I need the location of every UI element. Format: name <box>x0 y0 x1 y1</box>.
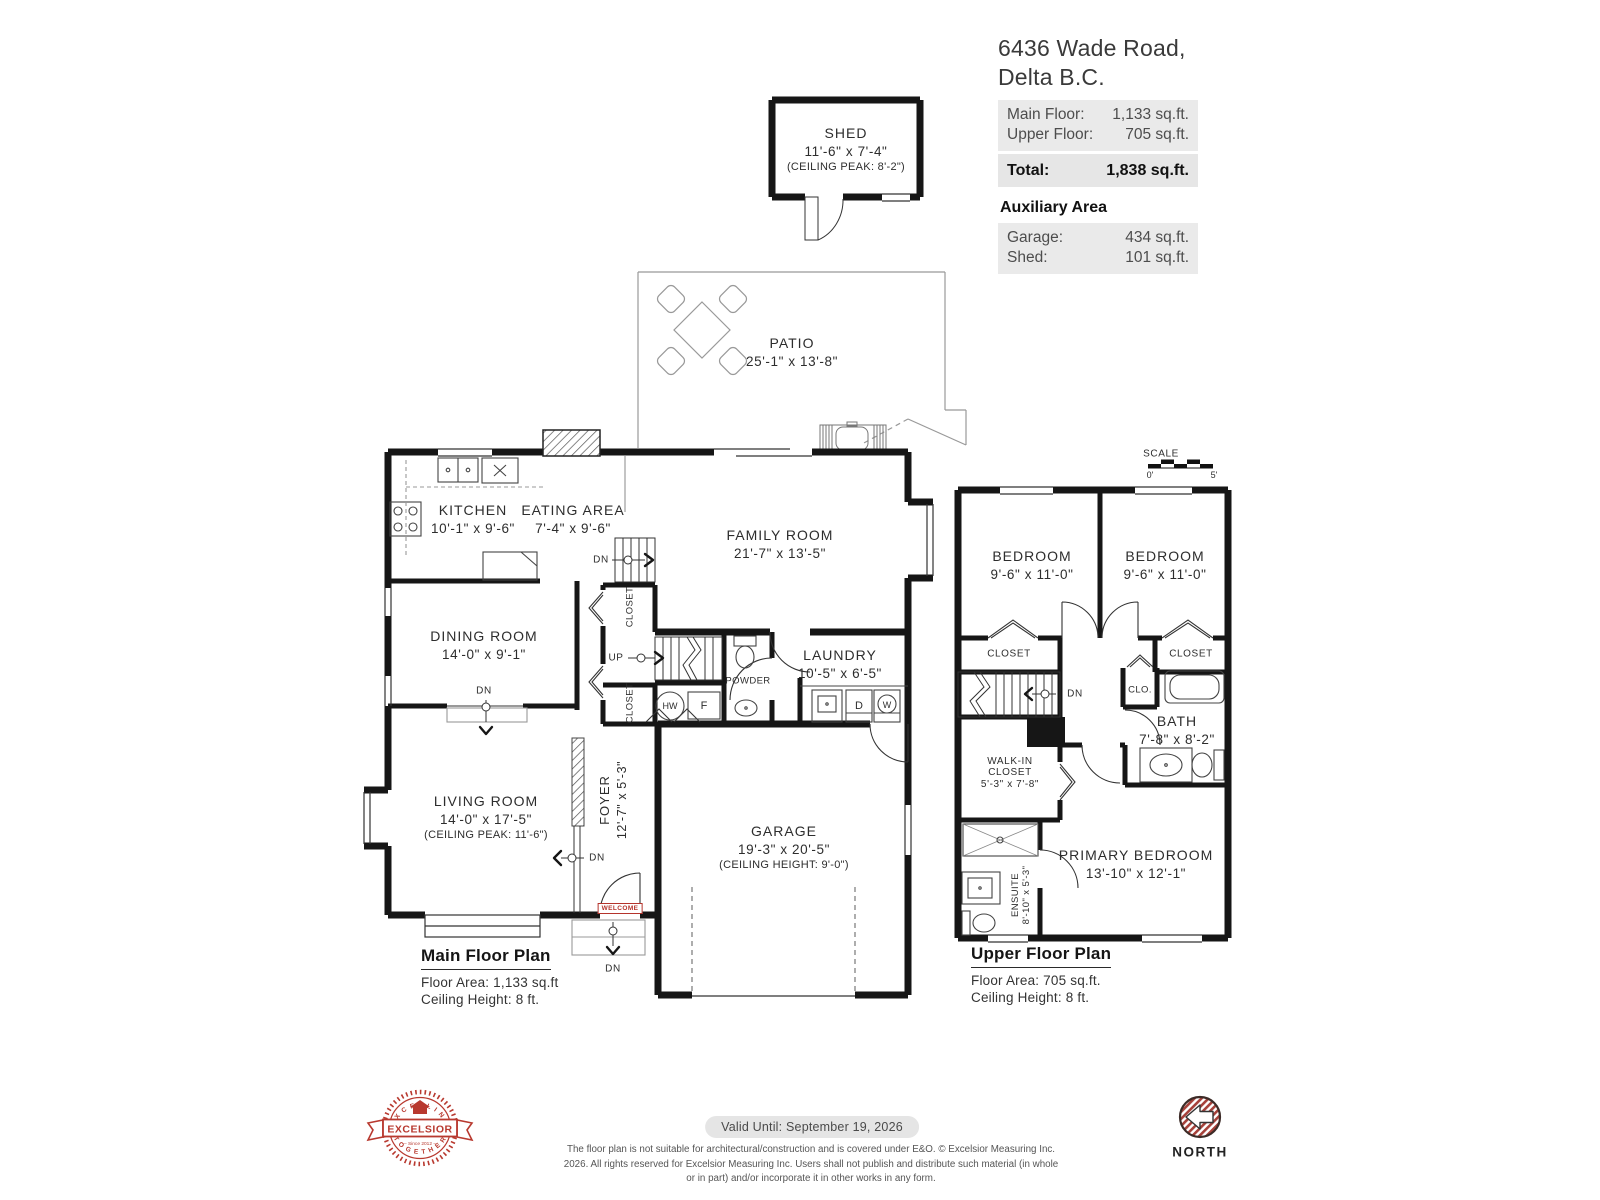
stair-rail-hatch <box>572 738 584 826</box>
bath-label: BATH 7'-8" x 8'-2" <box>1139 713 1215 747</box>
living-dims: 14'-0" x 17'-5" <box>424 812 548 827</box>
garage-value: 434 sq.ft. <box>1125 228 1189 248</box>
primary-bedroom-label: PRIMARY BEDROOM 13'-10" x 12'-1" <box>1059 847 1214 881</box>
patio-table-icon <box>655 283 748 376</box>
shed-dims: 11'-6" x 7'-4" <box>787 144 905 159</box>
scale-label: SCALE <box>1143 449 1179 460</box>
primary-dims: 13'-10" x 12'-1" <box>1059 866 1214 881</box>
walkin-closet-label: WALK-IN CLOSET 5'-3" x 7'-8" <box>981 756 1039 790</box>
wall-block <box>1027 717 1065 747</box>
welcome-mat: WELCOME <box>598 897 643 915</box>
family-name: FAMILY ROOM <box>727 527 834 543</box>
dn-label-porch: DN <box>605 964 621 975</box>
garage-note: (CEILING HEIGHT: 9'-0") <box>719 859 849 871</box>
laundry-name: LAUNDRY <box>798 647 882 663</box>
hw-tank-label: HW <box>663 701 678 711</box>
total-value: 1,838 sq.ft. <box>1106 160 1189 181</box>
up-label: UP <box>608 653 623 664</box>
kitchen-dims: 10'-1" x 9'-6" <box>431 521 515 536</box>
dining-room-label: DINING ROOM 14'-0" x 9'-1" <box>430 628 537 662</box>
bedroom-left-label: BEDROOM 9'-6" x 11'-0" <box>991 548 1074 582</box>
shed-name: SHED <box>787 125 905 141</box>
upper-floor-row: Upper Floor: 705 sq.ft. <box>1007 125 1189 145</box>
bath-name: BATH <box>1139 713 1215 729</box>
main-floor-label: Main Floor: <box>1007 105 1085 125</box>
scale-bar <box>1148 460 1213 469</box>
dn-label-foyer: DN <box>589 853 605 864</box>
furnace-label: F <box>701 700 708 712</box>
north-indicator-icon <box>1180 1097 1220 1137</box>
dining-dims: 14'-0" x 9'-1" <box>430 647 537 662</box>
living-note: (CEILING PEAK: 11'-6") <box>424 829 548 841</box>
shed-row: Shed: 101 sq.ft. <box>1007 248 1189 268</box>
foyer-label: FOYER 12'-7" x 5'-3" <box>597 761 629 839</box>
laundry-dims: 10'-5" x 6'-5" <box>798 666 882 681</box>
dn-label-dining: DN <box>476 686 492 697</box>
north-label: NORTH <box>1172 1145 1228 1160</box>
foyer-name: FOYER <box>597 761 612 839</box>
washer-label: W <box>883 700 892 710</box>
address-line1: 6436 Wade Road, <box>998 34 1198 63</box>
upper-dn-label: DN <box>1067 689 1083 700</box>
powder-label: POWDER <box>725 676 770 687</box>
garage-name: GARAGE <box>719 823 849 839</box>
chimney-hatch <box>543 430 600 456</box>
primary-name: PRIMARY BEDROOM <box>1059 847 1214 863</box>
shed-value: 101 sq.ft. <box>1125 248 1189 268</box>
garage-label: GARAGE 19'-3" x 20'-5" (CEILING HEIGHT: … <box>719 823 849 871</box>
scale-end: 5' <box>1211 470 1218 480</box>
main-plan-ceiling: Ceiling Height: 8 ft. <box>421 992 558 1007</box>
upper-plan-caption: Upper Floor Plan Floor Area: 705 sq.ft. … <box>971 944 1111 1005</box>
family-dims: 21'-7" x 13'-5" <box>727 546 834 561</box>
upper-plan-area: Floor Area: 705 sq.ft. <box>971 973 1111 988</box>
ensuite-dims: 8'-10" x 5'-3" <box>1021 866 1032 925</box>
floor-plan-drawing: · E X C E L L I N G · · T O G E T H E R … <box>0 0 1600 1200</box>
bath-dims: 7'-8" x 8'-2" <box>1139 732 1215 747</box>
logo-middle-text: EXCELSIOR <box>387 1124 452 1136</box>
shed-note: (CEILING PEAK: 8'-2") <box>787 161 905 173</box>
upper-plan-title: Upper Floor Plan <box>971 944 1111 968</box>
ensuite-name: ENSUITE <box>1010 866 1021 925</box>
main-closet-upper-label: CLOSET <box>625 587 636 627</box>
garage-row: Garage: 434 sq.ft. <box>1007 228 1189 248</box>
header: 6436 Wade Road, Delta B.C. Main Floor: 1… <box>998 34 1198 274</box>
laundry-label: LAUNDRY 10'-5" x 6'-5" <box>798 647 882 681</box>
total-panel: Total: 1,838 sq.ft. <box>998 154 1198 187</box>
floor-plan-page: · E X C E L L I N G · · T O G E T H E R … <box>0 0 1600 1200</box>
living-name: LIVING ROOM <box>424 793 548 809</box>
shed-label: Shed: <box>1007 248 1048 268</box>
eating-dims: 7'-4" x 9'-6" <box>521 521 624 536</box>
garage-dims: 19'-3" x 20'-5" <box>719 842 849 857</box>
garage-door <box>692 887 855 996</box>
main-plan-title: Main Floor Plan <box>421 946 551 970</box>
bedroom-left-name: BEDROOM <box>991 548 1074 564</box>
garage-label: Garage: <box>1007 228 1063 248</box>
dn-label-stairs: DN <box>593 555 609 566</box>
direction-arrows <box>480 554 1056 954</box>
welcome-mat-text: WELCOME <box>598 903 643 914</box>
address: 6436 Wade Road, Delta B.C. <box>998 34 1198 92</box>
main-plan-area: Floor Area: 1,133 sq.ft <box>421 975 558 990</box>
main-plan-caption: Main Floor Plan Floor Area: 1,133 sq.ft … <box>421 946 558 1007</box>
kitchen-label: KITCHEN 10'-1" x 9'-6" <box>431 502 515 536</box>
address-line2: Delta B.C. <box>998 63 1198 92</box>
family-room-label: FAMILY ROOM 21'-7" x 13'-5" <box>727 527 834 561</box>
shed-label-block: SHED 11'-6" x 7'-4" (CEILING PEAK: 8'-2"… <box>787 125 905 173</box>
walkin-line2: CLOSET <box>981 767 1039 778</box>
total-row: Total: 1,838 sq.ft. <box>1007 160 1189 181</box>
foyer-dims: 12'-7" x 5'-3" <box>615 761 629 839</box>
logo-since-text: — Since 2012 — <box>402 1141 438 1147</box>
valid-until-badge: Valid Until: September 19, 2026 <box>705 1118 919 1136</box>
auxiliary-panel: Garage: 434 sq.ft. Shed: 101 sq.ft. <box>998 223 1198 274</box>
main-floor-value: 1,133 sq.ft. <box>1112 105 1189 125</box>
bedroom-right-name: BEDROOM <box>1124 548 1207 564</box>
upper-closet-left-label: CLOSET <box>987 649 1031 660</box>
living-room-label: LIVING ROOM 14'-0" x 17'-5" (CEILING PEA… <box>424 793 548 841</box>
auxiliary-title: Auxiliary Area <box>1000 199 1198 217</box>
main-closet-lower-label: CLOSET <box>625 683 636 723</box>
dining-name: DINING ROOM <box>430 628 537 644</box>
bedroom-right-dims: 9'-6" x 11'-0" <box>1124 567 1207 582</box>
clo-label: CLO. <box>1128 685 1152 696</box>
kitchen-name: KITCHEN <box>431 502 515 518</box>
upper-floor-label: Upper Floor: <box>1007 125 1093 145</box>
floor-areas-panel: Main Floor: 1,133 sq.ft. Upper Floor: 70… <box>998 100 1198 151</box>
bedroom-left-dims: 9'-6" x 11'-0" <box>991 567 1074 582</box>
upper-floor-value: 705 sq.ft. <box>1125 125 1189 145</box>
bedroom-right-label: BEDROOM 9'-6" x 11'-0" <box>1124 548 1207 582</box>
excelsior-logo: · E X C E L L I N G · · T O G E T H E R … <box>368 1092 472 1164</box>
patio-label-block: PATIO 25'-1" x 13'-8" <box>746 335 838 369</box>
walkin-dims: 5'-3" x 7'-8" <box>981 779 1039 790</box>
total-label: Total: <box>1007 160 1049 181</box>
upper-fixtures <box>962 671 1224 935</box>
walkin-line1: WALK-IN <box>981 756 1039 767</box>
eating-name: EATING AREA <box>521 502 624 518</box>
ensuite-label: ENSUITE 8'-10" x 5'-3" <box>1010 866 1032 925</box>
dryer-label: D <box>855 700 863 712</box>
eating-area-label: EATING AREA 7'-4" x 9'-6" <box>521 502 624 536</box>
valid-until-text: Valid Until: September 19, 2026 <box>705 1116 919 1138</box>
main-floor-row: Main Floor: 1,133 sq.ft. <box>1007 105 1189 125</box>
patio-dims: 25'-1" x 13'-8" <box>746 354 838 369</box>
patio-name: PATIO <box>746 335 838 351</box>
scale-start: 0' <box>1147 470 1154 480</box>
disclaimer-text: The floor plan is not suitable for archi… <box>561 1143 1061 1187</box>
upper-plan-ceiling: Ceiling Height: 8 ft. <box>971 990 1111 1005</box>
upper-closet-right-label: CLOSET <box>1169 649 1213 660</box>
